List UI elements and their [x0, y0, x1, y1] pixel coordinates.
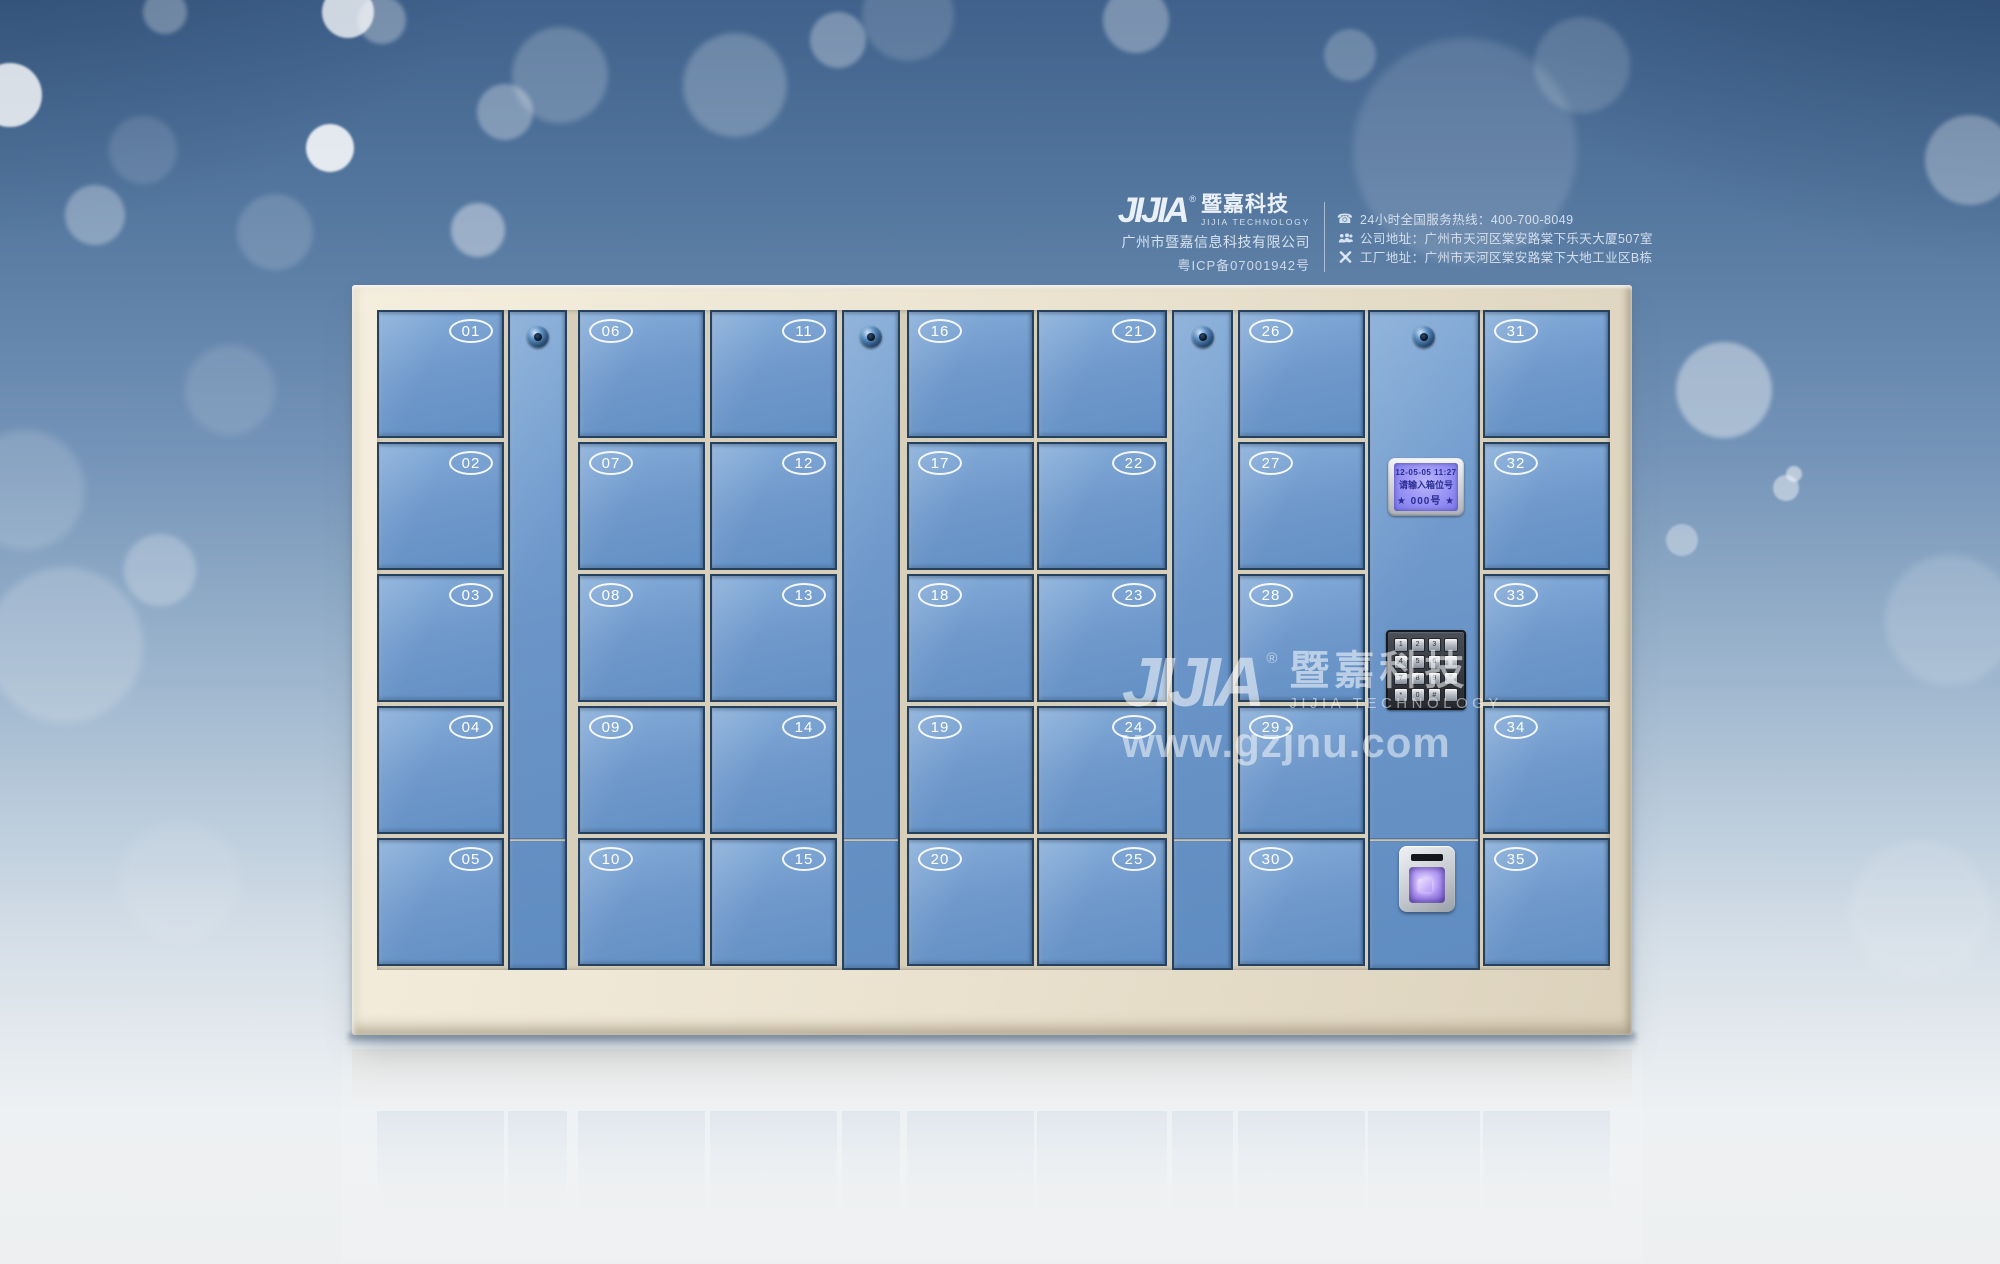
- header-brand-block: JIJIA ® 暨嘉科技 JIJIA TECHNOLOGY 广州市暨嘉信息科技有…: [1102, 194, 1653, 274]
- locker-door-11: 11: [710, 310, 837, 438]
- lock-column-panel: [508, 310, 567, 970]
- locker-door-04: 04: [377, 706, 504, 834]
- phone-icon: ☎: [1337, 212, 1353, 225]
- door-number-badge: 08: [589, 583, 633, 607]
- keypad: 123456789*0#: [1386, 630, 1466, 710]
- door-number-badge: 23: [1112, 583, 1156, 607]
- panel-seam: [844, 838, 898, 842]
- locker-door-29: 29: [1238, 706, 1365, 834]
- brand-name-block: 暨嘉科技 JIJIA TECHNOLOGY: [1201, 194, 1310, 227]
- keypad-key-4: 4: [1394, 655, 1408, 669]
- lcd-text-line1: 12-05-05 11:27: [1394, 468, 1458, 477]
- door-grid: 0102030405060708091011121314151617181920…: [377, 310, 1610, 970]
- keypad-key-blank: [1444, 655, 1458, 669]
- lcd-text-line3: ★ 000号 ★: [1394, 492, 1458, 507]
- hotline-row: ☎ 24小时全国服务热线：400-700-8049: [1337, 209, 1653, 228]
- keypad-key-9: 9: [1428, 672, 1442, 686]
- door-number-badge: 18: [918, 583, 962, 607]
- locker-door-01: 01: [377, 310, 504, 438]
- keypad-key-3: 3: [1428, 638, 1442, 652]
- jijia-logo: JIJIA: [1118, 194, 1187, 228]
- icp-number: 粤ICP备07001942号: [1102, 255, 1310, 274]
- header-contacts: ☎ 24小时全国服务热线：400-700-8049 公司地址：广州市天河区棠安路…: [1337, 194, 1653, 274]
- locker-door-03: 03: [377, 574, 504, 702]
- locker-door-19: 19: [907, 706, 1034, 834]
- door-number-badge: 01: [449, 319, 493, 343]
- control-column-panel: 12-05-05 11:27请输入箱位号★ 000号 ★123456789*0#: [1368, 310, 1480, 970]
- locker-door-12: 12: [710, 442, 837, 570]
- locker-door-16: 16: [907, 310, 1034, 438]
- brand-name-cn: 暨嘉科技: [1201, 194, 1310, 216]
- people-icon: [1337, 232, 1353, 244]
- locker-door-06: 06: [578, 310, 705, 438]
- door-number-badge: 29: [1249, 715, 1293, 739]
- factory-address-row: 工厂地址：广州市天河区棠安路棠下大地工业区B栋: [1337, 247, 1653, 266]
- locker-door-10: 10: [578, 838, 705, 966]
- door-number-badge: 04: [449, 715, 493, 739]
- lock-column-panel: [842, 310, 900, 970]
- product-poster: JIJIA ® 暨嘉科技 JIJIA TECHNOLOGY 广州市暨嘉信息科技有…: [0, 0, 2000, 1264]
- door-number-badge: 11: [782, 319, 826, 343]
- locker-door-25: 25: [1037, 838, 1167, 966]
- door-number-badge: 26: [1249, 319, 1293, 343]
- door-number-badge: 03: [449, 583, 493, 607]
- door-number-badge: 22: [1112, 451, 1156, 475]
- key-lock: [860, 326, 882, 348]
- fingerprint-reader: [1399, 846, 1455, 912]
- keypad-key-1: 1: [1394, 638, 1408, 652]
- header-divider: [1324, 202, 1325, 272]
- door-number-badge: 05: [449, 847, 493, 871]
- door-number-badge: 30: [1249, 847, 1293, 871]
- door-number-badge: 34: [1494, 715, 1538, 739]
- locker-door-20: 20: [907, 838, 1034, 966]
- factory-address-text: 工厂地址：广州市天河区棠安路棠下大地工业区B栋: [1360, 247, 1653, 266]
- door-number-badge: 06: [589, 319, 633, 343]
- locker-door-08: 08: [578, 574, 705, 702]
- keypad-key-blank: [1444, 638, 1458, 652]
- lcd-text-line2: 请输入箱位号: [1394, 478, 1458, 491]
- lock-column-panel: [1172, 310, 1233, 970]
- locker-door-27: 27: [1238, 442, 1365, 570]
- keypad-key-0: 0: [1411, 688, 1425, 702]
- locker-door-17: 17: [907, 442, 1034, 570]
- logo-row: JIJIA ® 暨嘉科技 JIJIA TECHNOLOGY: [1102, 194, 1310, 228]
- key-lock: [527, 326, 549, 348]
- hotline-text: 24小时全国服务热线：400-700-8049: [1360, 209, 1573, 228]
- locker-door-05: 05: [377, 838, 504, 966]
- tools-icon: [1337, 251, 1353, 263]
- locker-door-18: 18: [907, 574, 1034, 702]
- reflection-fade: [342, 1045, 1642, 1259]
- keypad-key-*: *: [1394, 688, 1408, 702]
- door-number-badge: 02: [449, 451, 493, 475]
- locker-door-02: 02: [377, 442, 504, 570]
- locker-door-32: 32: [1483, 442, 1610, 570]
- keypad-key-8: 8: [1411, 672, 1425, 686]
- locker-door-23: 23: [1037, 574, 1167, 702]
- company-name: 广州市暨嘉信息科技有限公司: [1102, 232, 1310, 252]
- locker-door-24: 24: [1037, 706, 1167, 834]
- keypad-key-blank: [1444, 672, 1458, 686]
- locker-cabinet: 0102030405060708091011121314151617181920…: [352, 285, 1632, 1035]
- floor-reflection: [352, 1049, 1632, 1249]
- keypad-key-6: 6: [1428, 655, 1442, 669]
- locker-door-30: 30: [1238, 838, 1365, 966]
- door-number-badge: 32: [1494, 451, 1538, 475]
- locker-door-26: 26: [1238, 310, 1365, 438]
- locker-door-07: 07: [578, 442, 705, 570]
- locker-door-33: 33: [1483, 574, 1610, 702]
- door-number-badge: 17: [918, 451, 962, 475]
- door-number-badge: 28: [1249, 583, 1293, 607]
- door-number-badge: 07: [589, 451, 633, 475]
- door-number-badge: 19: [918, 715, 962, 739]
- door-number-badge: 35: [1494, 847, 1538, 871]
- keypad-key-7: 7: [1394, 672, 1408, 686]
- locker-door-14: 14: [710, 706, 837, 834]
- door-number-badge: 16: [918, 319, 962, 343]
- company-address-text: 公司地址：广州市天河区棠安路棠下乐天大厦507室: [1360, 228, 1653, 247]
- locker-door-28: 28: [1238, 574, 1365, 702]
- key-lock: [1192, 326, 1214, 348]
- door-number-badge: 12: [782, 451, 826, 475]
- locker-door-34: 34: [1483, 706, 1610, 834]
- locker-door-09: 09: [578, 706, 705, 834]
- lcd-display: 12-05-05 11:27请输入箱位号★ 000号 ★: [1388, 458, 1464, 516]
- door-number-badge: 14: [782, 715, 826, 739]
- lcd-screen: 12-05-05 11:27请输入箱位号★ 000号 ★: [1394, 463, 1458, 511]
- panel-seam: [510, 838, 565, 842]
- panel-seam: [1370, 838, 1478, 842]
- brand-name-en: JIJIA TECHNOLOGY: [1201, 217, 1310, 227]
- door-number-badge: 24: [1112, 715, 1156, 739]
- keypad-key-2: 2: [1411, 638, 1425, 652]
- locker-door-13: 13: [710, 574, 837, 702]
- door-number-badge: 09: [589, 715, 633, 739]
- locker-door-35: 35: [1483, 838, 1610, 966]
- locker-door-15: 15: [710, 838, 837, 966]
- door-number-badge: 31: [1494, 319, 1538, 343]
- cabinet-shadow: [348, 1033, 1636, 1049]
- door-number-badge: 21: [1112, 319, 1156, 343]
- door-number-badge: 13: [782, 583, 826, 607]
- header-left: JIJIA ® 暨嘉科技 JIJIA TECHNOLOGY 广州市暨嘉信息科技有…: [1102, 194, 1310, 274]
- key-lock: [1413, 326, 1435, 348]
- fingerprint-slot: [1411, 854, 1443, 861]
- door-number-badge: 27: [1249, 451, 1293, 475]
- keypad-key-5: 5: [1411, 655, 1425, 669]
- door-number-badge: 33: [1494, 583, 1538, 607]
- keypad-key-#: #: [1428, 688, 1442, 702]
- fingerprint-window: [1409, 867, 1445, 903]
- company-address-row: 公司地址：广州市天河区棠安路棠下乐天大厦507室: [1337, 228, 1653, 247]
- locker-door-21: 21: [1037, 310, 1167, 438]
- door-number-badge: 10: [589, 847, 633, 871]
- door-number-badge: 20: [918, 847, 962, 871]
- panel-seam: [1174, 838, 1231, 842]
- door-number-badge: 15: [782, 847, 826, 871]
- locker-door-22: 22: [1037, 442, 1167, 570]
- keypad-key-blank: [1444, 688, 1458, 702]
- locker-door-31: 31: [1483, 310, 1610, 438]
- registered-trademark-mark: ®: [1189, 194, 1196, 204]
- door-number-badge: 25: [1112, 847, 1156, 871]
